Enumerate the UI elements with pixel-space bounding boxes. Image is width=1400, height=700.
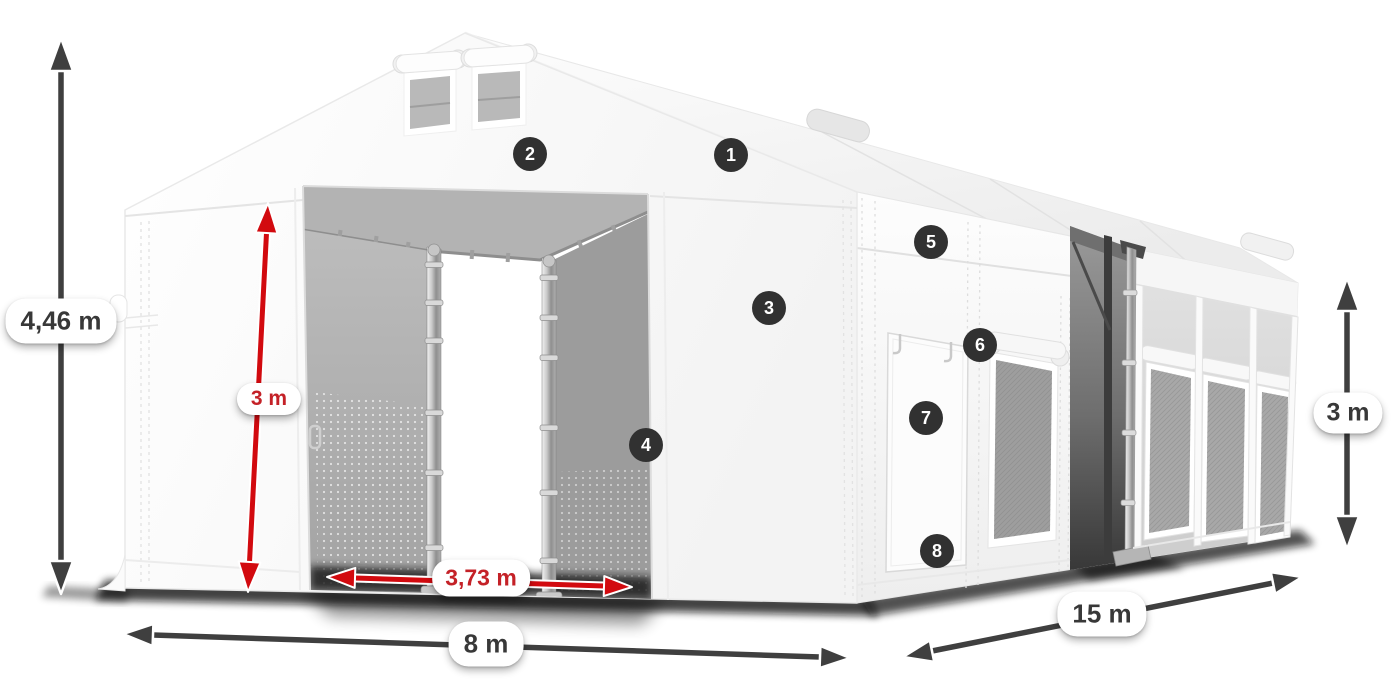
marker-6: 6	[963, 328, 997, 362]
tent-illustration	[0, 0, 1400, 700]
dimension-label-tent-width: 8 m	[449, 622, 524, 667]
side-window-1	[983, 331, 1069, 548]
front-entrance-interior	[295, 180, 660, 605]
tent-dimension-diagram: 1 2 3 4 5 6 7 8 4,46 m 3 m 3,73 m 8 m 15…	[0, 0, 1400, 700]
side-window-2	[1139, 344, 1201, 540]
gable-vent-window-right	[461, 44, 537, 130]
marker-5: 5	[914, 225, 948, 259]
marker-7: 7	[909, 401, 943, 435]
dimension-label-side-wall-height: 3 m	[1313, 393, 1382, 434]
marker-3: 3	[752, 291, 786, 325]
dimension-label-tent-length: 15 m	[1057, 592, 1146, 637]
dimension-label-entrance-width: 3,73 m	[432, 560, 530, 597]
side-doorway-opening	[1070, 226, 1133, 570]
marker-1: 1	[714, 138, 748, 172]
marker-4: 4	[629, 428, 663, 462]
gable-vent-window-left	[393, 50, 467, 136]
marker-8: 8	[920, 534, 954, 568]
dimension-label-total-height: 4,46 m	[6, 299, 117, 344]
side-window-3	[1197, 357, 1255, 542]
dimension-label-entrance-height: 3 m	[237, 383, 301, 415]
marker-2: 2	[513, 137, 547, 171]
